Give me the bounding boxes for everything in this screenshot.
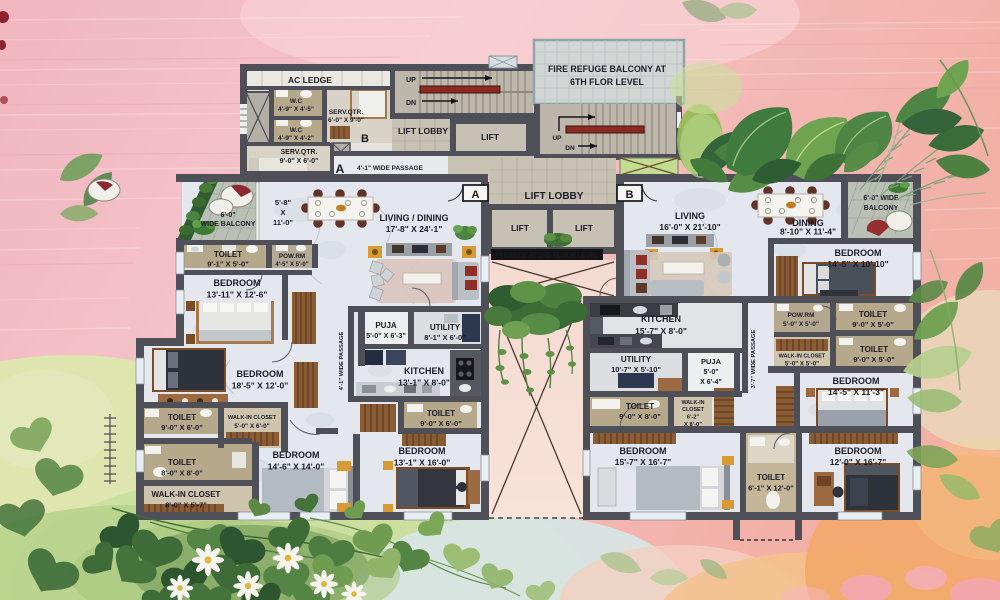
- svg-text:5'-0" X 6'-0": 5'-0" X 6'-0": [234, 423, 269, 430]
- svg-text:B: B: [361, 133, 369, 145]
- svg-text:TOILET: TOILET: [168, 413, 196, 422]
- svg-text:18'-5" X 12'-0": 18'-5" X 12'-0": [232, 381, 289, 391]
- svg-text:6'-1" X 12'-0": 6'-1" X 12'-0": [748, 484, 794, 493]
- svg-text:13'-1" X 8'-0": 13'-1" X 8'-0": [398, 378, 450, 388]
- svg-text:6'-2": 6'-2": [687, 415, 700, 421]
- svg-text:17'-8" X 24'-1": 17'-8" X 24'-1": [386, 224, 443, 234]
- svg-text:13'-11" X 12'-6": 13'-11" X 12'-6": [207, 290, 268, 300]
- svg-text:CLOSET: CLOSET: [682, 407, 705, 413]
- svg-text:9'-0" X 5'-0": 9'-0" X 5'-0": [852, 320, 894, 329]
- svg-text:TOILET: TOILET: [860, 345, 888, 354]
- svg-text:9'-0" X 6'-0": 9'-0" X 6'-0": [161, 423, 203, 432]
- svg-text:9'-0" X 6'-0": 9'-0" X 6'-0": [420, 419, 462, 428]
- svg-text:LIFT: LIFT: [511, 223, 530, 233]
- svg-text:5'-0" X 5'-0": 5'-0" X 5'-0": [783, 321, 819, 328]
- svg-text:DN: DN: [406, 100, 416, 107]
- svg-text:BEDROOM: BEDROOM: [237, 369, 284, 379]
- svg-text:BEDROOM: BEDROOM: [835, 446, 882, 456]
- svg-text:UP: UP: [552, 135, 562, 142]
- svg-text:14'-6" X 14'-0": 14'-6" X 14'-0": [268, 462, 325, 472]
- svg-text:TOILET: TOILET: [626, 402, 654, 411]
- svg-text:15'-7" X 16'-7": 15'-7" X 16'-7": [615, 457, 672, 467]
- svg-text:WALK-IN CLOSET: WALK-IN CLOSET: [152, 490, 221, 499]
- svg-text:TOILET: TOILET: [859, 310, 887, 319]
- svg-text:5'-8": 5'-8": [275, 198, 292, 207]
- svg-text:WALK-IN CLOSET: WALK-IN CLOSET: [779, 354, 826, 360]
- svg-text:DN: DN: [565, 145, 575, 152]
- svg-text:WALK-IN: WALK-IN: [681, 400, 704, 406]
- svg-text:BALCONY: BALCONY: [864, 205, 899, 212]
- svg-text:14'-5" X 10'-10": 14'-5" X 10'-10": [827, 259, 888, 269]
- svg-text:LIFT LOBBY: LIFT LOBBY: [525, 191, 584, 202]
- svg-text:PUJA: PUJA: [701, 357, 722, 366]
- svg-text:4'-5" X 5'-0": 4'-5" X 5'-0": [275, 262, 308, 268]
- svg-text:9'-0" X 8'-0": 9'-0" X 8'-0": [619, 412, 661, 421]
- svg-text:W.C: W.C: [290, 98, 303, 105]
- svg-text:B: B: [626, 189, 634, 201]
- svg-text:X 6'-4": X 6'-4": [700, 379, 722, 386]
- svg-text:TOILET: TOILET: [427, 409, 455, 418]
- svg-text:LIFT: LIFT: [575, 223, 594, 233]
- svg-text:TERRACE AT 2ND FLOOR LEVEL: TERRACE AT 2ND FLOOR LEVEL: [495, 253, 598, 260]
- svg-text:14'-5" X 11'-3": 14'-5" X 11'-3": [828, 387, 884, 397]
- svg-text:6'-0": 6'-0": [220, 212, 235, 219]
- svg-text:SERV.QTR.: SERV.QTR.: [329, 109, 364, 116]
- svg-text:3'-7" WIDE PASSAGE: 3'-7" WIDE PASSAGE: [751, 329, 757, 388]
- svg-text:8'-10" X 11'-4": 8'-10" X 11'-4": [780, 227, 836, 237]
- svg-text:UTILITY: UTILITY: [621, 355, 652, 364]
- svg-text:WIDE BALCONY: WIDE BALCONY: [201, 221, 256, 228]
- svg-text:SERV.QTR.: SERV.QTR.: [281, 149, 318, 156]
- svg-text:LIFT LOBBY: LIFT LOBBY: [398, 126, 448, 136]
- svg-text:BEDROOM: BEDROOM: [214, 278, 261, 288]
- svg-text:TOILET: TOILET: [168, 458, 196, 467]
- svg-text:LIFT: LIFT: [481, 132, 500, 142]
- svg-text:TOILET: TOILET: [757, 473, 785, 482]
- svg-text:6'-0" WIDE: 6'-0" WIDE: [863, 195, 899, 202]
- svg-text:POW.RM: POW.RM: [279, 253, 305, 260]
- svg-text:X: X: [280, 208, 285, 217]
- svg-text:PUJA: PUJA: [375, 321, 397, 330]
- svg-text:16'-0" X 21'-10": 16'-0" X 21'-10": [659, 222, 720, 232]
- svg-text:UTILITY: UTILITY: [430, 323, 461, 332]
- svg-text:LIVING / DINING: LIVING / DINING: [379, 213, 448, 223]
- svg-text:KITCHEN: KITCHEN: [641, 314, 681, 324]
- svg-text:WALK-IN CLOSET: WALK-IN CLOSET: [228, 415, 277, 421]
- svg-text:W.C: W.C: [290, 127, 303, 134]
- svg-text:BEDROOM: BEDROOM: [399, 446, 446, 456]
- svg-text:13'-1" X 16'-0": 13'-1" X 16'-0": [394, 458, 451, 468]
- svg-text:BEDROOM: BEDROOM: [835, 248, 882, 258]
- svg-text:11'-0": 11'-0": [273, 218, 293, 227]
- svg-text:5'-0" X 5'-0": 5'-0" X 5'-0": [785, 361, 819, 368]
- svg-text:5'-0": 5'-0": [703, 369, 718, 376]
- svg-text:A: A: [336, 162, 345, 176]
- svg-text:KITCHEN: KITCHEN: [404, 366, 444, 376]
- svg-text:4'-9" X 4'-2": 4'-9" X 4'-2": [278, 135, 314, 142]
- svg-text:12'-0" X 16'-7": 12'-0" X 16'-7": [830, 457, 887, 467]
- svg-text:X 8'-0": X 8'-0": [684, 422, 702, 428]
- svg-text:TOILET: TOILET: [214, 250, 242, 259]
- svg-text:10'-7" X 5'-10": 10'-7" X 5'-10": [611, 365, 661, 374]
- svg-text:8'-0" X 5'-7": 8'-0" X 5'-7": [165, 501, 207, 510]
- svg-text:6TH FLOR LEVEL: 6TH FLOR LEVEL: [570, 77, 644, 87]
- svg-text:4'-9" X 4'-5": 4'-9" X 4'-5": [278, 106, 314, 113]
- svg-text:9'-1" X 5'-0": 9'-1" X 5'-0": [207, 260, 249, 269]
- svg-text:9'-0" X 6'-0": 9'-0" X 6'-0": [280, 158, 319, 165]
- svg-text:BEDROOM: BEDROOM: [620, 446, 667, 456]
- svg-text:BEDROOM: BEDROOM: [273, 450, 320, 460]
- svg-text:UP: UP: [406, 77, 416, 84]
- svg-text:FIRE REFUGE BALCONY AT: FIRE REFUGE BALCONY AT: [548, 64, 667, 74]
- svg-text:5'-0" X 6'-3": 5'-0" X 6'-3": [366, 331, 406, 340]
- svg-text:AC LEDGE: AC LEDGE: [288, 75, 332, 85]
- svg-text:6'-0" X 9'-0": 6'-0" X 9'-0": [328, 117, 364, 124]
- svg-text:LIVING: LIVING: [675, 211, 705, 221]
- svg-text:4'-1" WIDE PASSAGE: 4'-1" WIDE PASSAGE: [357, 165, 424, 172]
- svg-text:BEDROOM: BEDROOM: [833, 376, 880, 386]
- svg-text:4'-1" WIDE PASSAGE: 4'-1" WIDE PASSAGE: [339, 331, 345, 390]
- svg-text:A: A: [472, 189, 480, 201]
- svg-text:8'-0" X 8'-0": 8'-0" X 8'-0": [161, 469, 203, 478]
- svg-text:9'-0" X 5'-0": 9'-0" X 5'-0": [853, 355, 895, 364]
- svg-text:POW.RM: POW.RM: [787, 312, 814, 319]
- svg-text:8'-1" X 6'-0": 8'-1" X 6'-0": [424, 333, 466, 342]
- svg-text:15'-7" X 8'-0": 15'-7" X 8'-0": [635, 326, 687, 336]
